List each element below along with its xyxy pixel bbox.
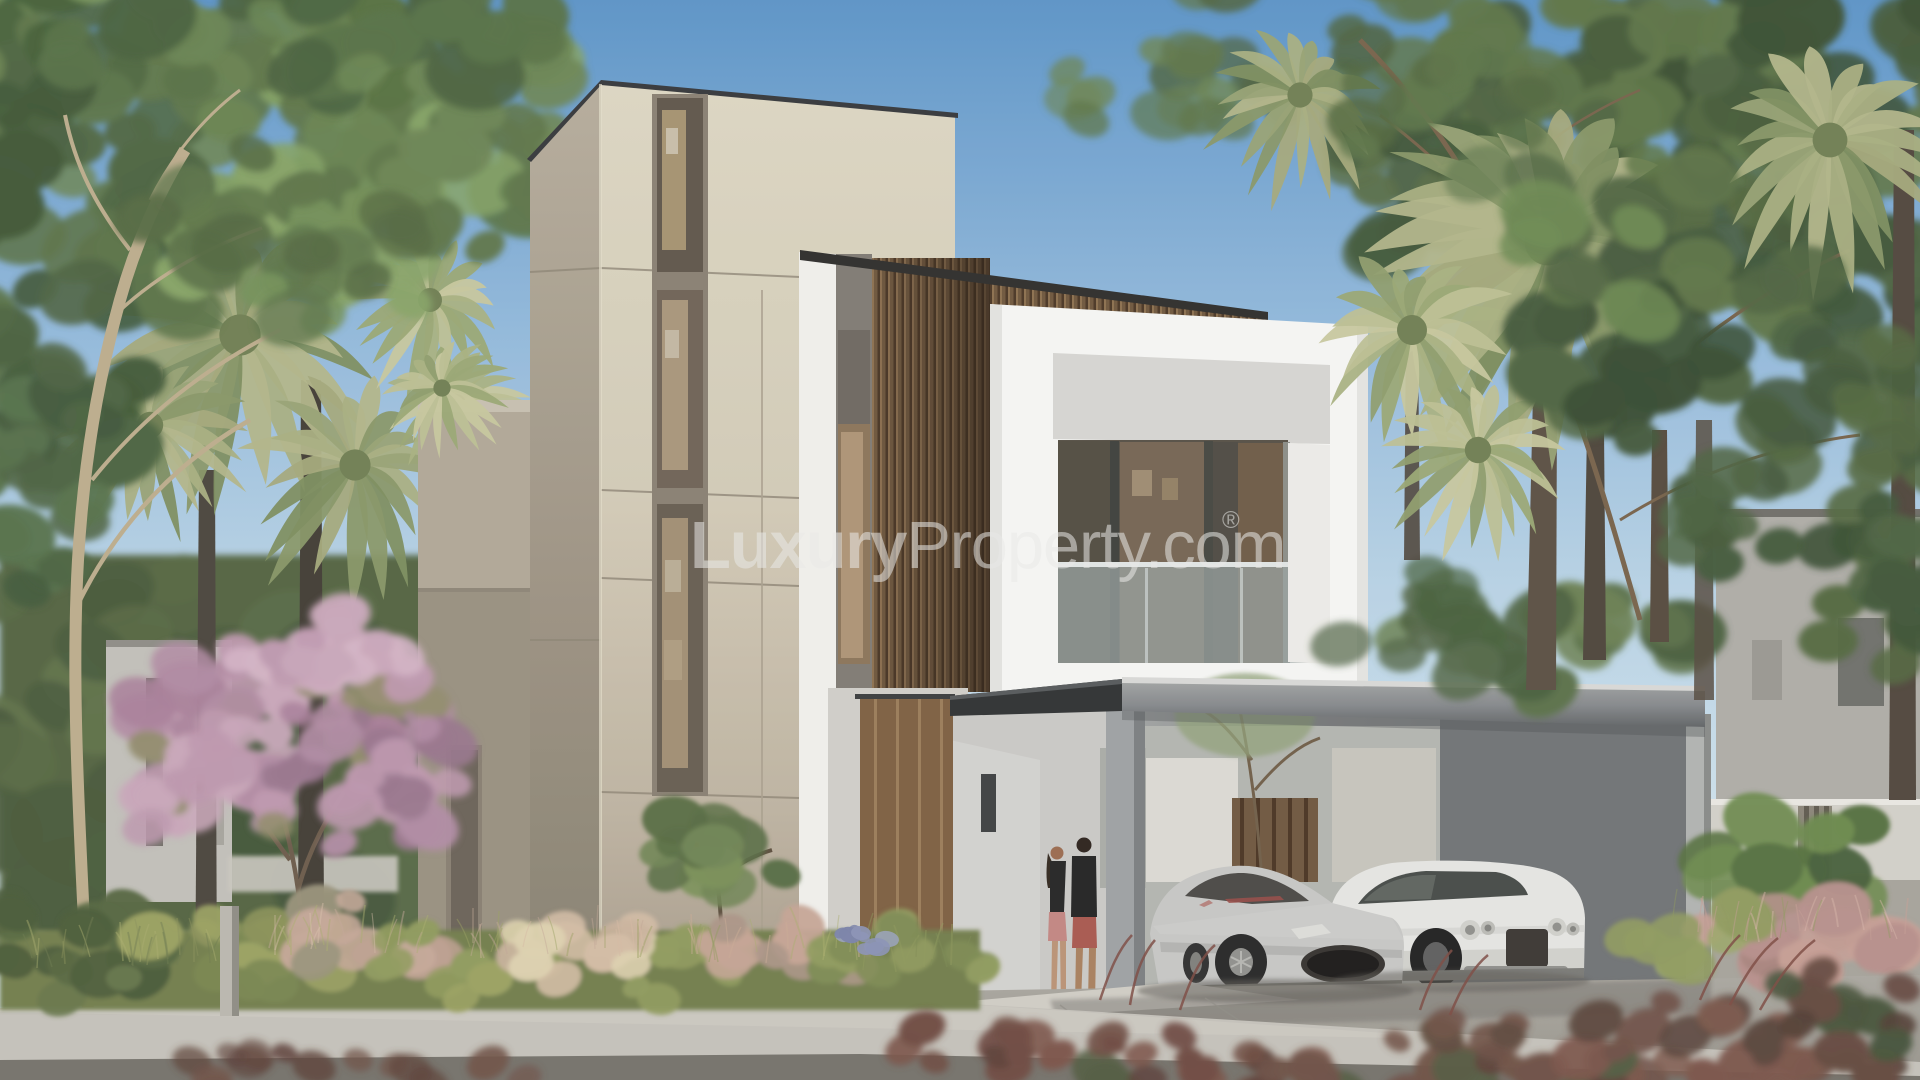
svg-text:LuxuryProperty.com: LuxuryProperty.com xyxy=(690,508,1285,583)
svg-text:®: ® xyxy=(1222,507,1240,534)
